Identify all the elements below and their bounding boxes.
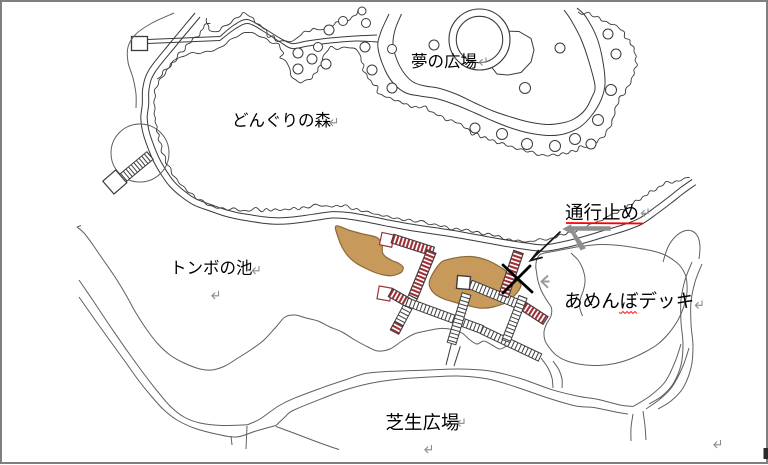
svg-text:トンボの池: トンボの池 bbox=[170, 259, 253, 278]
svg-text:芝生広場: 芝生広場 bbox=[386, 412, 460, 433]
svg-text:夢の広場: 夢の広場 bbox=[411, 52, 477, 71]
svg-text:あめんぼデッキ: あめんぼデッキ bbox=[564, 291, 694, 312]
svg-text:通行止め: 通行止め bbox=[565, 202, 639, 223]
svg-text:どんぐりの森: どんぐりの森 bbox=[232, 111, 332, 130]
